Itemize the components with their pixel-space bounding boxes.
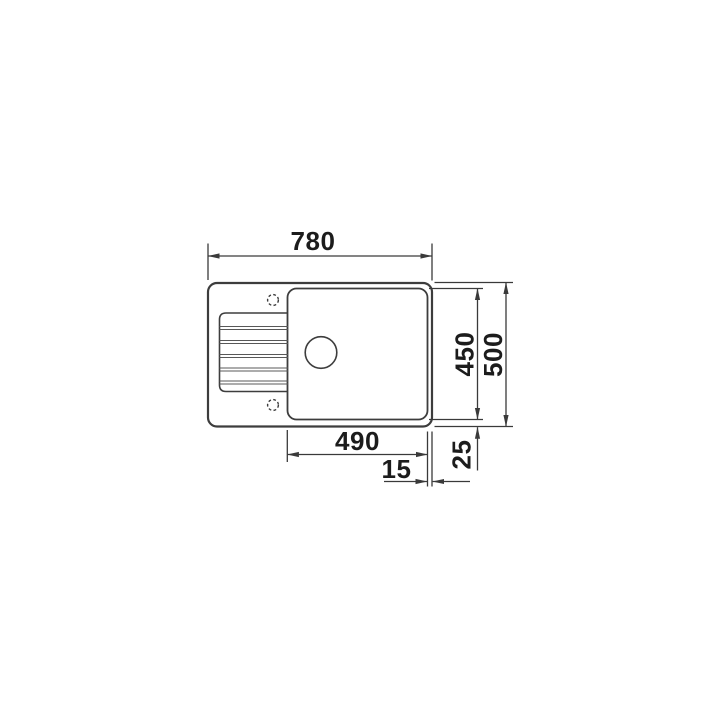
dim-label-overall-depth: 500 [478,332,508,377]
dim-bottom-rim: 25 [447,427,478,470]
drainer-ribs [220,327,289,385]
dim-label-right-rim: 15 [382,454,412,484]
drain-hole [305,337,337,369]
dim-bowl-area-depth: 450 [429,289,483,420]
sink-dimension-drawing: 780 450 500 490 15 [0,0,720,720]
dim-label-bottom-rim: 25 [447,440,477,470]
tap-hole-top [268,295,279,306]
tap-hole-bottom [268,400,279,411]
technical-drawing-svg: 780 450 500 490 15 [0,0,720,720]
sink-body-group [208,283,432,427]
dim-label-overall-width: 780 [291,226,336,256]
bowl-outline [288,289,428,420]
drainer-outline [220,313,289,392]
dim-label-bowl-area-width: 490 [335,426,380,456]
dim-overall-width: 780 [208,226,432,281]
dim-label-bowl-area-depth: 450 [450,332,480,377]
